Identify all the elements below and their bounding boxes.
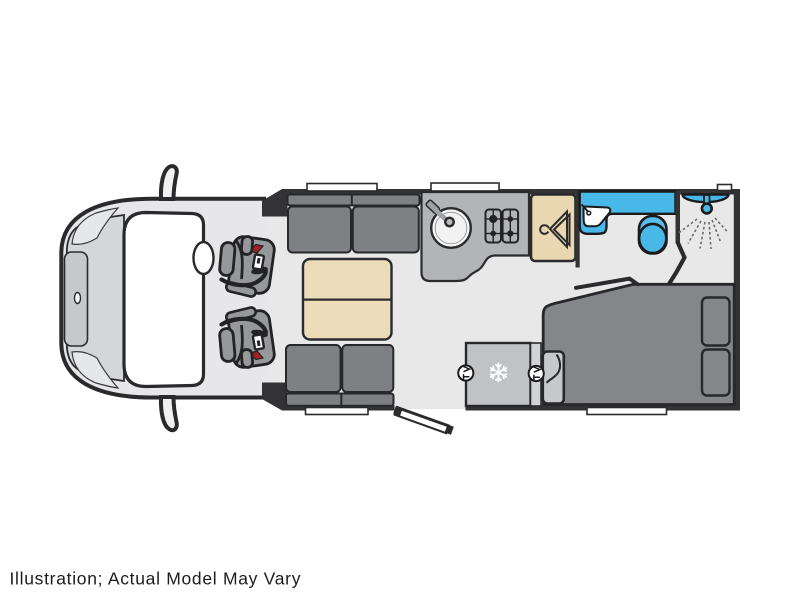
svg-text:Illustration; Actual Model May: Illustration; Actual Model May Vary [10, 568, 302, 588]
